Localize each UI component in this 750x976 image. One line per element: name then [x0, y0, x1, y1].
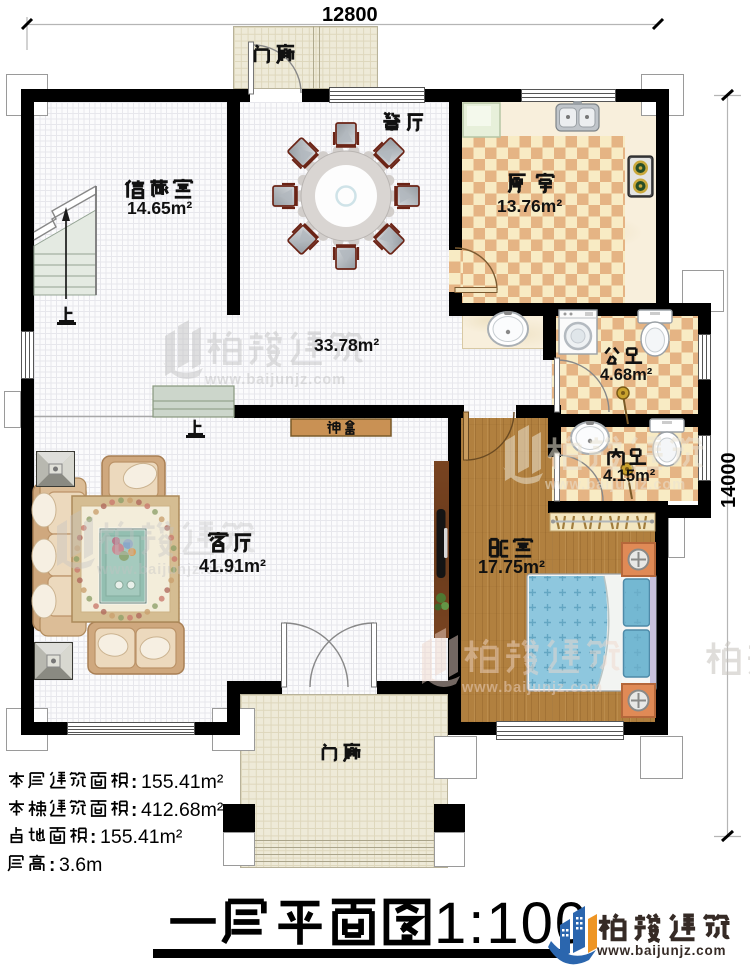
svg-text:4.68m²: 4.68m²	[600, 366, 653, 384]
svg-text::: :	[49, 855, 55, 876]
svg-text::: :	[131, 772, 137, 793]
svg-text:www.baijunjz.com: www.baijunjz.com	[461, 680, 603, 696]
svg-text:155.41m²: 155.41m²	[141, 771, 224, 793]
svg-text:www.baijunjz.com: www.baijunjz.com	[596, 943, 726, 958]
svg-text:13.76m²: 13.76m²	[497, 196, 562, 216]
svg-text:www.baijunjz.com: www.baijunjz.com	[204, 372, 346, 388]
svg-text:14.65m²: 14.65m²	[127, 198, 192, 218]
svg-text:155.41m²: 155.41m²	[100, 826, 183, 848]
svg-text::: :	[131, 800, 137, 821]
svg-text:4.15m²: 4.15m²	[603, 467, 656, 485]
svg-text:14000: 14000	[718, 452, 740, 508]
svg-text:33.78m²: 33.78m²	[314, 335, 379, 355]
svg-text::: :	[90, 827, 96, 848]
svg-text:12800: 12800	[322, 4, 378, 26]
svg-text:412.68m²: 412.68m²	[141, 799, 224, 821]
svg-text:17.75m²: 17.75m²	[478, 557, 545, 577]
svg-text:41.91m²: 41.91m²	[199, 556, 266, 576]
svg-text:3.6m: 3.6m	[59, 854, 102, 876]
